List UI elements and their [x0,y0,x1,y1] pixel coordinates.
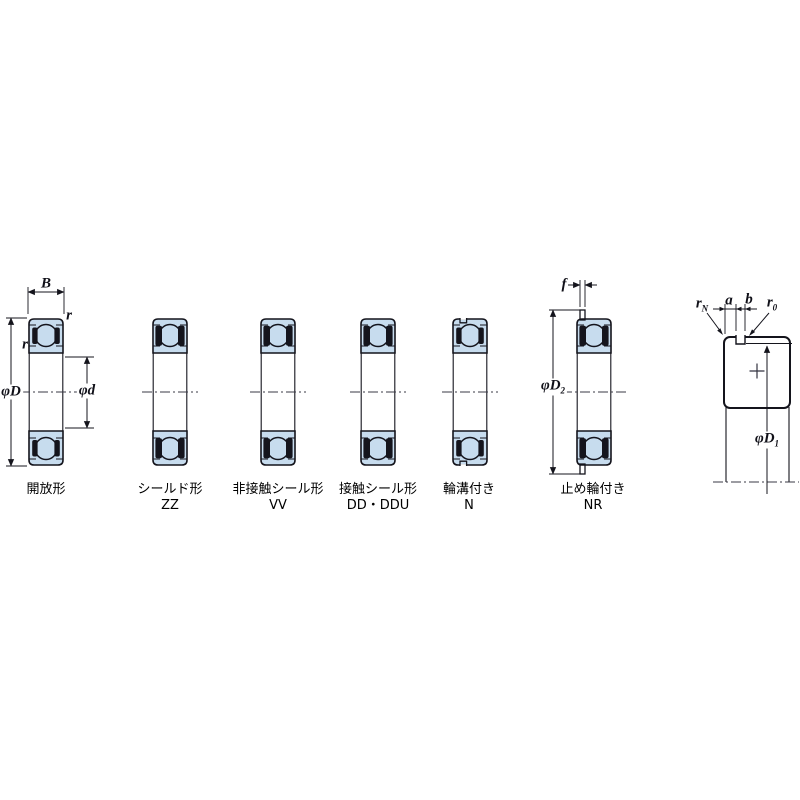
dim-label-phiD: φD [0,385,23,400]
dim-label-B: B [41,277,51,292]
center-cross-mark [750,364,765,379]
bearing-name: 止め輪付き [560,482,625,498]
bearing-name: 開放形 [26,482,65,498]
bearing-name: 輪溝付き [443,482,495,498]
dim-label-b: b [745,293,753,308]
bearing-name: シールド形 [137,482,202,498]
bearing-caption-dd: 接触シール形 DD・DDU [339,482,417,514]
bearing-name: 接触シール形 [339,482,417,498]
dim-label-phiD1: φD1 [753,432,781,449]
dim-label-phiD2: φD2 [539,379,567,396]
bearing-code: N [443,498,495,514]
dim-label-phid: φd [77,384,97,399]
dim-label-f: f [562,278,567,293]
dim-label-r-outer: r [66,309,72,324]
dim-label-rN: rN [696,297,708,314]
bearing-name: 非接触シール形 [232,482,323,498]
bearing-code: VV [232,498,323,514]
bearing-diagram [0,0,800,800]
bearing-caption-open: 開放形 [26,482,65,498]
bearing-types-figure: B r r φD φd f φD2 φD1 a b rN r0 開放形 シールド… [0,0,800,800]
leader-rN [707,313,723,335]
groove-detail-drawing [707,304,799,494]
dimension-f [568,280,597,307]
bearing-code: NR [560,498,625,514]
bearing-caption-zz: シールド形 ZZ [137,482,202,514]
bearing-caption-nr: 止め輪付き NR [560,482,625,514]
bearing-code: ZZ [137,498,202,514]
bearing-caption-n: 輪溝付き N [443,482,495,514]
dim-label-r-inner: r [22,338,28,353]
dim-label-a: a [725,294,733,309]
dim-label-r0: r0 [767,296,777,313]
bearing-caption-vv: 非接触シール形 VV [232,482,323,514]
leader-r0 [749,313,769,336]
bearing-code: DD・DDU [339,498,417,514]
